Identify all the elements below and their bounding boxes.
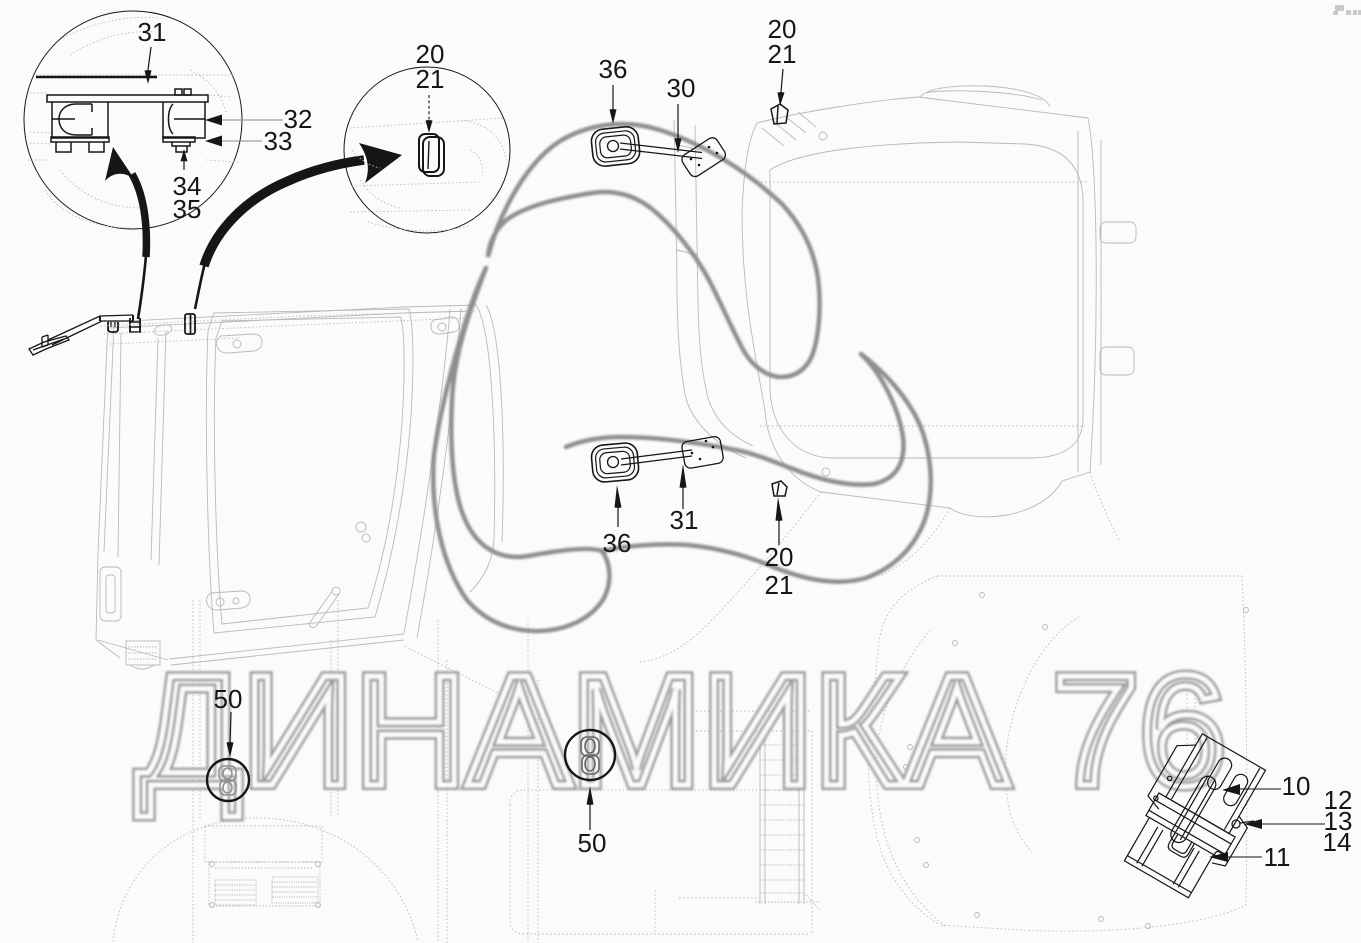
- svg-text:50: 50: [578, 828, 607, 858]
- svg-text:30: 30: [667, 73, 696, 103]
- svg-text:36: 36: [599, 54, 628, 84]
- svg-text:33: 33: [264, 126, 293, 156]
- svg-text:21: 21: [416, 64, 445, 94]
- svg-text:36: 36: [603, 528, 632, 558]
- svg-text:50: 50: [214, 684, 243, 714]
- svg-text:21: 21: [768, 39, 797, 69]
- svg-text:14: 14: [1323, 827, 1352, 857]
- svg-text:35: 35: [173, 194, 202, 224]
- svg-text:31: 31: [138, 17, 167, 47]
- svg-text:11: 11: [1264, 842, 1291, 872]
- svg-text:20: 20: [765, 542, 794, 572]
- svg-text:21: 21: [765, 570, 794, 600]
- svg-text:ДИНАМИКА 76: ДИНАМИКА 76: [136, 643, 1226, 819]
- svg-text:10: 10: [1282, 771, 1311, 801]
- svg-text:31: 31: [670, 505, 699, 535]
